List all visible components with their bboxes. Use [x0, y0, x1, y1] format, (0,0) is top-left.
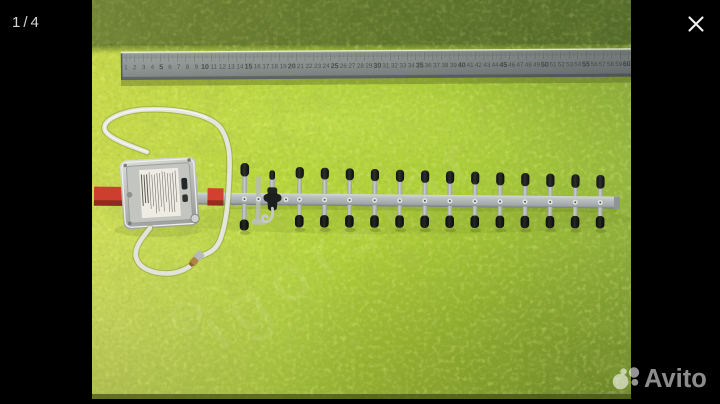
- svg-text:Avito: Avito: [644, 365, 707, 393]
